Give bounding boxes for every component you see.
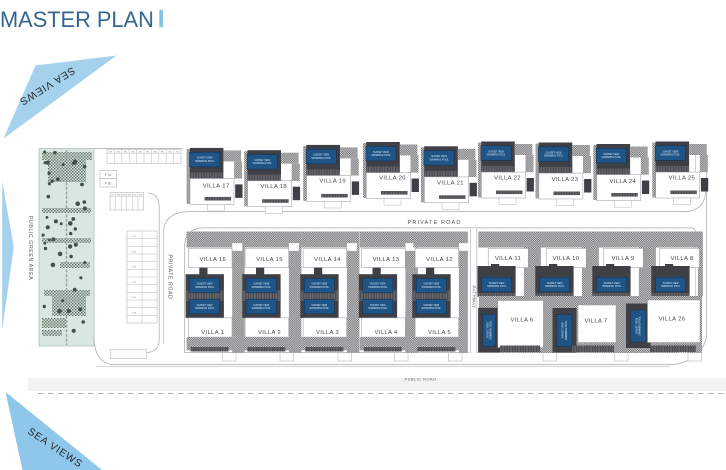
svg-text:SWIMMING POOL: SWIMMING POOL (661, 155, 681, 157)
svg-text:PUBLIC GREEN AREA: PUBLIC GREEN AREA (27, 216, 33, 281)
svg-text:SWIMMING POOL: SWIMMING POOL (545, 286, 565, 288)
svg-text:SUNSET VIEW: SUNSET VIEW (489, 283, 506, 285)
svg-text:VILLA 13: VILLA 13 (373, 257, 400, 263)
svg-text:P28: P28 (117, 194, 120, 196)
svg-text:SWIMMING POOL: SWIMMING POOL (661, 286, 681, 288)
svg-text:SUNSET VIEW: SUNSET VIEW (547, 283, 564, 285)
svg-text:VILLA 21: VILLA 21 (437, 180, 464, 186)
svg-text:P26: P26 (128, 194, 131, 196)
svg-text:VILLA 20: VILLA 20 (379, 176, 406, 182)
svg-text:SWIMMING POOL: SWIMMING POOL (252, 308, 272, 310)
svg-text:P34: P34 (124, 151, 127, 153)
svg-text:VILLA 26: VILLA 26 (659, 317, 686, 323)
svg-text:P37: P37 (146, 151, 149, 153)
svg-text:SWIMMING POOL: SWIMMING POOL (310, 308, 330, 310)
svg-text:P33: P33 (116, 151, 119, 153)
svg-text:SWIMMING POOL: SWIMMING POOL (544, 156, 564, 158)
svg-text:SUNSET VIEW: SUNSET VIEW (663, 283, 680, 285)
svg-text:VILLA 10: VILLA 10 (553, 256, 580, 262)
svg-text:SUNSET VIEW: SUNSET VIEW (370, 305, 387, 307)
svg-text:SUNSET VIEW: SUNSET VIEW (311, 284, 328, 286)
svg-text:VILLA 3: VILLA 3 (316, 330, 339, 336)
svg-text:SWIMMING POOL: SWIMMING POOL (491, 320, 493, 340)
svg-text:SWIMMING POOL: SWIMMING POOL (429, 159, 449, 161)
svg-text:SWIMMING POOL: SWIMMING POOL (195, 161, 215, 163)
svg-text:VILLA 19: VILLA 19 (319, 179, 346, 185)
svg-text:SWIMMING POOL: SWIMMING POOL (253, 163, 273, 165)
svg-text:VILLA 23: VILLA 23 (552, 177, 579, 183)
svg-text:P36: P36 (139, 151, 142, 153)
svg-text:VILLA 7: VILLA 7 (584, 319, 607, 325)
svg-text:PRIVATE ROAD: PRIVATE ROAD (407, 220, 461, 226)
svg-text:SUNSET VIEW: SUNSET VIEW (604, 283, 621, 285)
svg-text:VILLA 5: VILLA 5 (428, 330, 451, 336)
svg-text:VILLA 14: VILLA 14 (314, 257, 341, 263)
svg-text:VILLA 15: VILLA 15 (256, 257, 283, 263)
svg-text:VILLA 1: VILLA 1 (201, 330, 224, 336)
svg-text:P25: P25 (134, 194, 137, 196)
svg-text:SWIMMING POOL: SWIMMING POOL (422, 287, 442, 289)
svg-text:SWIMMING POOL: SWIMMING POOL (252, 287, 272, 289)
svg-text:SWIMMING POOL: SWIMMING POOL (368, 308, 388, 310)
svg-text:VILLA 16: VILLA 16 (199, 257, 226, 263)
svg-text:P40: P40 (168, 151, 171, 153)
svg-text:VILLA 22: VILLA 22 (494, 176, 521, 182)
svg-text:SUNSET VIEW: SUNSET VIEW (197, 284, 214, 286)
svg-text:SUNSET VIEW: SUNSET VIEW (197, 158, 214, 160)
svg-text:SUNSET VIEW: SUNSET VIEW (423, 305, 440, 307)
svg-text:P35: P35 (131, 151, 134, 153)
svg-text:PUBLIC ROAD: PUBLIC ROAD (405, 377, 437, 382)
svg-text:SWIMMING POOL: SWIMMING POOL (310, 287, 330, 289)
svg-text:SWIMMING POOL: SWIMMING POOL (640, 316, 642, 336)
svg-text:SUNSET VIEW: SUNSET VIEW (254, 160, 271, 162)
svg-text:SUNSET VIEW: SUNSET VIEW (313, 155, 330, 157)
svg-text:PRIVATE ROAD: PRIVATE ROAD (167, 254, 173, 299)
svg-text:SUNSET VIEW: SUNSET VIEW (488, 151, 505, 153)
svg-text:P27: P27 (122, 194, 125, 196)
svg-text:P24: P24 (139, 194, 142, 196)
svg-text:SUNSET VIEW: SUNSET VIEW (373, 152, 390, 154)
svg-text:SUNSET VIEW: SUNSET VIEW (431, 156, 448, 158)
svg-text:P 30: P 30 (105, 181, 112, 185)
svg-text:P 31: P 31 (105, 173, 112, 177)
svg-text:SWIMMING POOL: SWIMMING POOL (312, 158, 332, 160)
svg-text:P41: P41 (176, 151, 179, 153)
svg-text:SWIMMING POOL: SWIMMING POOL (422, 308, 442, 310)
svg-text:SWIMMING POOL: SWIMMING POOL (487, 286, 507, 288)
svg-text:VILLA 12: VILLA 12 (426, 257, 453, 263)
svg-text:SUNSET VIEW: SUNSET VIEW (253, 305, 270, 307)
svg-text:VILLA 4: VILLA 4 (374, 330, 397, 336)
svg-text:VILLA 18: VILLA 18 (260, 184, 287, 190)
svg-text:SWIMMING POOL: SWIMMING POOL (368, 287, 388, 289)
svg-text:SWIMMING POOL: SWIMMING POOL (195, 308, 215, 310)
svg-text:SUNSET VIEW: SUNSET VIEW (197, 305, 214, 307)
svg-text:SWIMMING POOL: SWIMMING POOL (602, 157, 622, 159)
svg-text:VILLA 9: VILLA 9 (611, 256, 634, 262)
svg-text:SWIMMING POOL: SWIMMING POOL (195, 287, 215, 289)
svg-text:P29: P29 (111, 194, 114, 196)
svg-text:VILLA 6: VILLA 6 (510, 318, 533, 324)
svg-text:P39: P39 (161, 151, 164, 153)
svg-text:MASTER PLAN: MASTER PLAN (0, 7, 154, 32)
svg-text:VILLA 2: VILLA 2 (258, 330, 281, 336)
svg-text:SWIMMING POOL: SWIMMING POOL (371, 155, 391, 157)
svg-text:VILLA 8: VILLA 8 (670, 256, 693, 262)
svg-text:SUNSET VIEW: SUNSET VIEW (370, 284, 387, 286)
svg-text:VILLA 25: VILLA 25 (668, 176, 695, 182)
svg-text:SUNSET VIEW: SUNSET VIEW (487, 322, 489, 339)
svg-text:P38: P38 (153, 151, 156, 153)
svg-text:PATHWAY: PATHWAY (472, 286, 477, 309)
svg-text:SUNSET VIEW: SUNSET VIEW (253, 284, 270, 286)
svg-text:P32: P32 (109, 151, 112, 153)
svg-text:SUNSET VIEW: SUNSET VIEW (662, 151, 679, 153)
svg-text:SWIMMING POOL: SWIMMING POOL (486, 155, 506, 157)
svg-text:SWIMMING POOL: SWIMMING POOL (566, 320, 568, 340)
svg-text:SUNSET VIEW: SUNSET VIEW (603, 154, 620, 156)
svg-text:SWIMMING POOL: SWIMMING POOL (602, 286, 622, 288)
svg-text:VILLA 17: VILLA 17 (203, 184, 230, 190)
svg-text:SUNSET VIEW: SUNSET VIEW (311, 305, 328, 307)
svg-text:SUNSET VIEW: SUNSET VIEW (423, 284, 440, 286)
svg-text:VILLA 24: VILLA 24 (609, 179, 636, 185)
svg-text:SUNSET VIEW: SUNSET VIEW (636, 317, 638, 334)
svg-text:VILLA 11: VILLA 11 (495, 256, 521, 262)
svg-text:SUNSET VIEW: SUNSET VIEW (546, 152, 563, 154)
svg-text:SUNSET VIEW: SUNSET VIEW (563, 322, 565, 339)
